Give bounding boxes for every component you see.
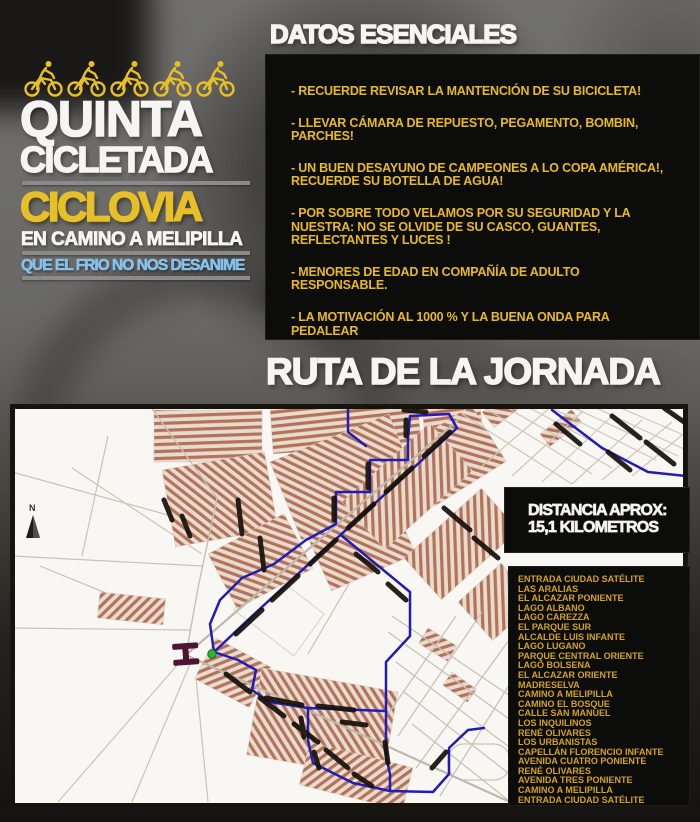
divider — [22, 276, 250, 280]
event-route-line: EN CAMINO A MELIPILLA — [21, 229, 242, 251]
divider — [22, 251, 250, 255]
streets-panel: ENTRADA CIUDAD SATÉLITE LAS ARALIAS EL A… — [508, 566, 690, 806]
essentials-item: - UN BUEN DESAYUNO DE CAMPEONES A LO COP… — [291, 162, 678, 189]
event-title-line1: QUINTA — [20, 94, 202, 144]
event-subtitle: CICLOVIA — [20, 186, 201, 228]
event-poster: QUINTA CICLETADA CICLOVIA EN CAMINO A ME… — [0, 0, 700, 822]
street-item: ENTRADA CIUDAD SATÉLITE — [518, 796, 690, 806]
start-point-dot — [208, 650, 216, 658]
event-title-line2: CICLETADA — [20, 142, 212, 178]
event-motto: QUE EL FRIO NO NOS DESANIME — [21, 257, 244, 275]
essentials-item: - LLEVAR CÁMARA DE REPUESTO, PEGAMENTO, … — [291, 117, 678, 144]
distance-panel: DISTANCIA APROX: 15,1 KILOMETROS — [504, 487, 690, 553]
essentials-item: - LA MOTIVACIÓN AL 1000 % Y LA BUENA OND… — [291, 311, 678, 338]
essentials-item: - MENORES DE EDAD EN COMPAÑÍA DE ADULTO … — [291, 266, 678, 293]
distance-value: 15,1 KILOMETROS — [528, 519, 690, 536]
essentials-item: - RECUERDE REVISAR LA MANTENCIÓN DE SU B… — [291, 85, 678, 99]
essentials-heading: DATOS ESENCIALES — [270, 21, 516, 47]
essentials-panel: - RECUERDE REVISAR LA MANTENCIÓN DE SU B… — [265, 54, 700, 340]
svg-text:N: N — [29, 503, 36, 513]
distance-label: DISTANCIA APROX: — [528, 502, 690, 519]
essentials-item: - POR SOBRE TODO VELAMOS POR SU SEGURIDA… — [291, 207, 678, 248]
route-heading: RUTA DE LA JORNADA — [266, 353, 660, 390]
